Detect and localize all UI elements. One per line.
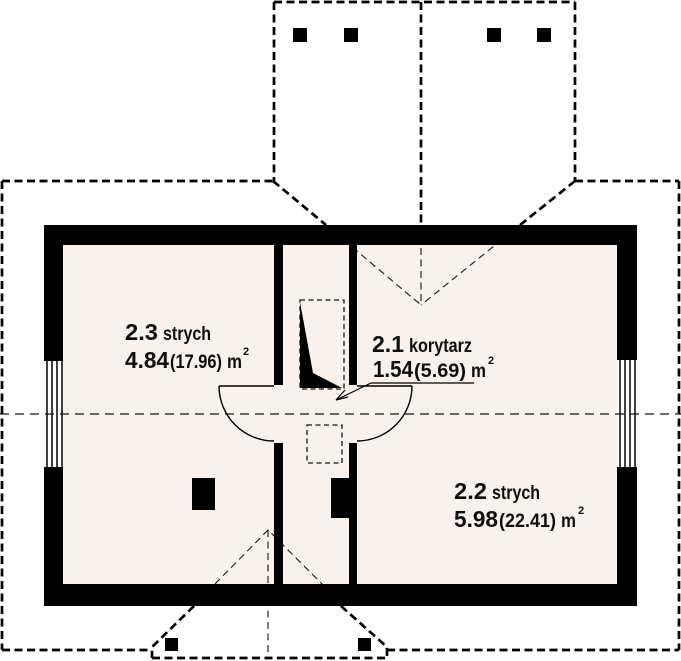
room-2-1-name: korytarz <box>409 336 472 357</box>
room-2-2-unit: m <box>561 511 576 532</box>
room-2-1-area-total: (5.69) <box>414 361 466 382</box>
room-2-1-unit-sup: 2 <box>488 355 494 367</box>
room-2-3-area: 4.84 <box>125 347 169 373</box>
roof-square-6 <box>358 638 371 651</box>
room-2-2-area: 5.98 <box>454 506 498 532</box>
room-2-3-name: strych <box>163 324 211 345</box>
room-2-1-number: 2.1 <box>372 331 404 357</box>
roof-square-1 <box>293 28 307 42</box>
room-2-3-number: 2.3 <box>125 319 158 345</box>
room-2-1-area: 1.54 <box>373 356 413 382</box>
corridor-wall-right-upper <box>349 245 357 385</box>
roof-square-3 <box>487 28 501 42</box>
exterior-wall-top <box>44 225 637 245</box>
floor-plan-page: 2.3 strych 4.84 (17.96) m 2 2.1 korytarz… <box>0 0 681 661</box>
roof-square-2 <box>344 28 358 42</box>
floor-plan-drawing: 2.3 strych 4.84 (17.96) m 2 2.1 korytarz… <box>0 0 681 661</box>
chimney-block-room23 <box>192 478 215 510</box>
room-2-2-area-total: (22.41) <box>499 511 556 532</box>
chimney-block-corridor <box>331 478 349 518</box>
room-2-2-name: strych <box>492 483 540 504</box>
room-2-1-unit: m <box>471 361 486 382</box>
room-2-2-number: 2.2 <box>454 478 487 504</box>
roof-square-5 <box>165 638 178 651</box>
room-2-2-unit-sup: 2 <box>578 505 584 517</box>
exterior-wall-bottom <box>44 584 637 606</box>
corridor-wall-left-lower <box>274 443 283 584</box>
room-2-3-area-total: (17.96) <box>170 352 222 373</box>
floor-area <box>44 225 637 606</box>
corridor-wall-left-upper <box>274 245 283 385</box>
corridor-wall-right-lower <box>349 443 357 584</box>
roof-square-4 <box>537 28 551 42</box>
room-2-3-unit-sup: 2 <box>243 346 249 358</box>
room-2-3-unit: m <box>227 352 242 373</box>
